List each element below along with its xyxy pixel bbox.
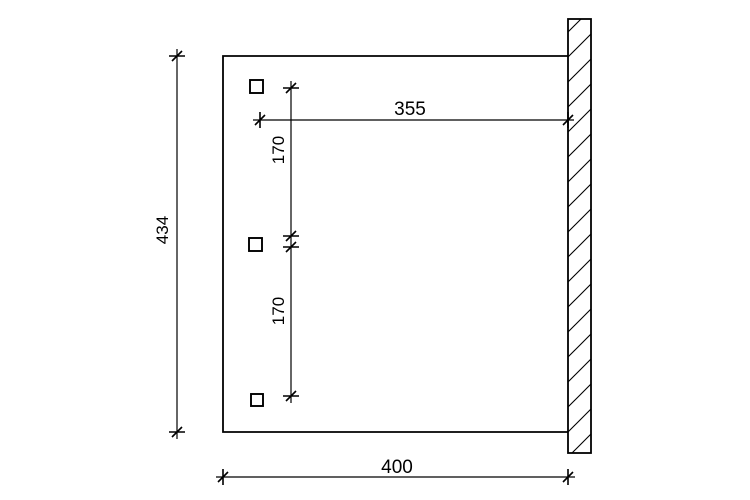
drawing-canvas: 434 355 170 170 400	[0, 0, 750, 500]
dimension-top-width: 355	[253, 99, 574, 128]
dim-label-400: 400	[381, 457, 413, 478]
dim-label-170-lower: 170	[269, 297, 288, 325]
post-top	[250, 80, 263, 93]
dimension-overall-height: 434	[153, 49, 185, 439]
post-bottom	[251, 394, 263, 406]
dim-label-355: 355	[394, 99, 426, 120]
dim-label-434: 434	[153, 216, 172, 244]
dimension-post-spacings: 170 170	[269, 81, 299, 403]
dim-label-170-upper: 170	[269, 136, 288, 164]
dimension-bottom-width: 400	[216, 457, 575, 485]
wall-hatched-section	[568, 19, 591, 453]
technical-drawing: 434 355 170 170 400	[0, 0, 750, 500]
post-middle	[249, 238, 262, 251]
